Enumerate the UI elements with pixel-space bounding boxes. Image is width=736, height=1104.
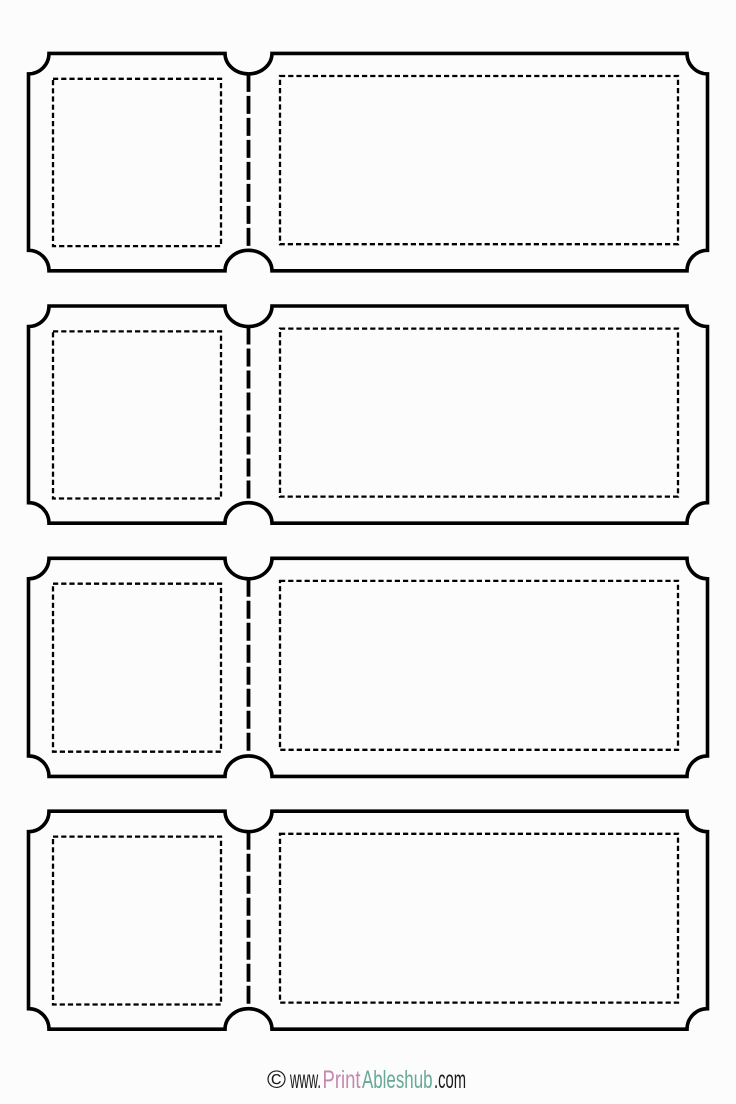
svg-text:.com: .com: [434, 1066, 466, 1094]
svg-text:www.: www.: [289, 1066, 321, 1094]
svg-text:©: ©: [267, 1066, 287, 1094]
svg-text:Print: Print: [323, 1066, 361, 1094]
svg-text:Ableshub: Ableshub: [362, 1066, 433, 1094]
